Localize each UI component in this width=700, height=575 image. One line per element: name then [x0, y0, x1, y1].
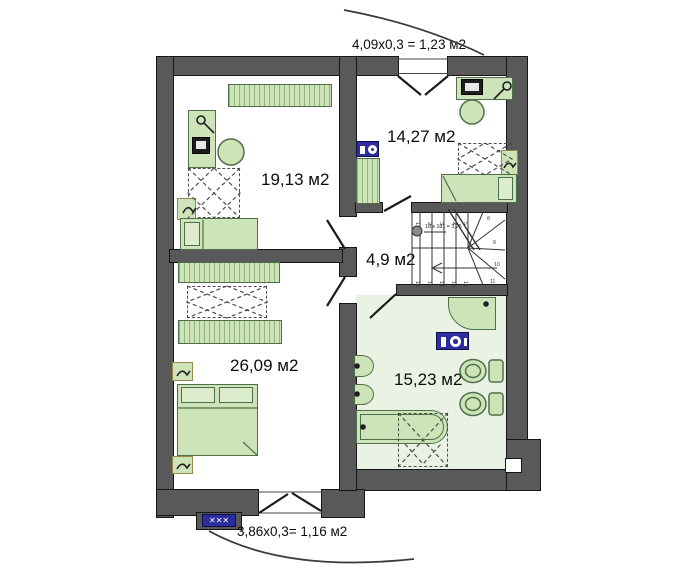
inner-wall	[397, 285, 507, 295]
computer-icon	[461, 79, 483, 95]
wall-recess	[505, 458, 522, 473]
drying-zone	[398, 413, 448, 467]
pillow	[181, 387, 215, 403]
stair-step-number: 8	[487, 216, 490, 222]
stair-step-numbers: 123458910111213141516	[414, 216, 500, 287]
pillow	[498, 177, 513, 200]
wardrobe	[178, 262, 280, 283]
stair-newel-post	[412, 226, 422, 236]
inner-wall	[356, 203, 382, 212]
rug-zone	[187, 286, 267, 318]
floor-plan: ✕✕✕ 19,13 м2 14,27 м2 4,9 м2 26,09 м2 15…	[0, 0, 700, 575]
inner-wall	[340, 57, 356, 216]
wall	[157, 490, 258, 515]
wardrobe	[228, 84, 332, 107]
stair-step-number: 2	[426, 222, 432, 225]
inner-wall	[170, 250, 342, 262]
radiator-icon: ✕✕✕	[202, 514, 236, 527]
wall	[157, 57, 173, 517]
cabinet	[356, 158, 380, 204]
stair-step-number: 9	[493, 240, 496, 246]
room-area-label: 15,23 м2	[394, 370, 462, 390]
balcony-dimension-label: 3,86x0,3= 1,16 м2	[237, 524, 347, 539]
stair-step-number: 5	[462, 222, 468, 225]
washing-machine-icon	[436, 332, 469, 350]
nightstand	[501, 150, 518, 175]
room-area-label: 14,27 м2	[387, 127, 455, 147]
pillow	[184, 222, 200, 246]
stair-step-number: 10	[494, 262, 500, 268]
stair-step-number: 4	[450, 222, 456, 225]
room-area-label: 4,9 м2	[366, 250, 416, 270]
pillow	[219, 387, 253, 403]
washing-machine-icon	[356, 141, 379, 157]
stair-formula: 18 x 181 = 3,25	[425, 224, 462, 230]
door-pillar	[340, 248, 356, 276]
stair-step-number: 1	[414, 222, 420, 225]
inner-wall	[412, 203, 507, 212]
nightstand	[172, 362, 193, 381]
room-area-label: 19,13 м2	[261, 170, 329, 190]
wall	[157, 57, 398, 75]
computer-icon	[192, 137, 210, 154]
stair-step-number: 3	[438, 222, 444, 225]
wall	[322, 490, 364, 517]
nightstand	[172, 456, 193, 474]
wardrobe	[178, 320, 282, 344]
staircase: 18 x 181 = 3,25 123458910111213141516	[412, 209, 505, 287]
nightstand	[177, 198, 196, 220]
room-area-label: 26,09 м2	[230, 356, 298, 376]
wall	[507, 57, 527, 470]
balcony-dimension-label: 4,09x0,3 = 1,23 м2	[352, 37, 466, 52]
